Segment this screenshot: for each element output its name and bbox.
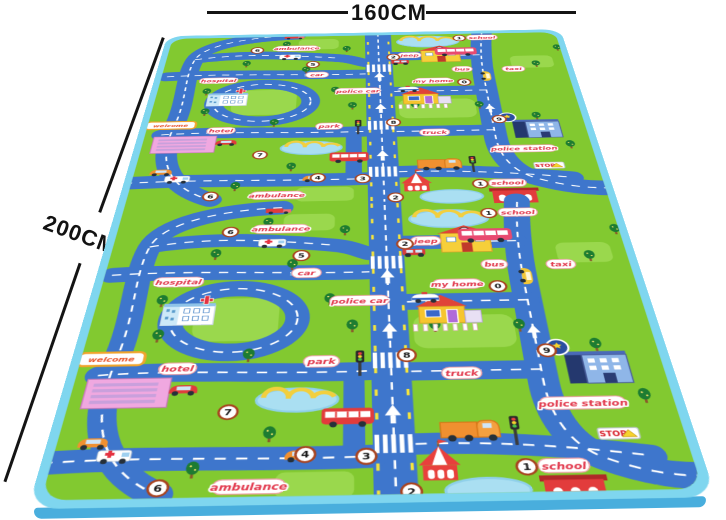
play-mat: welcome (26, 28, 718, 514)
width-dimension-line-left (207, 11, 348, 14)
product-photo: 160CM 200CM (0, 0, 726, 520)
width-dimension-line-right (426, 11, 576, 14)
width-dimension-label: 160CM (351, 0, 427, 26)
